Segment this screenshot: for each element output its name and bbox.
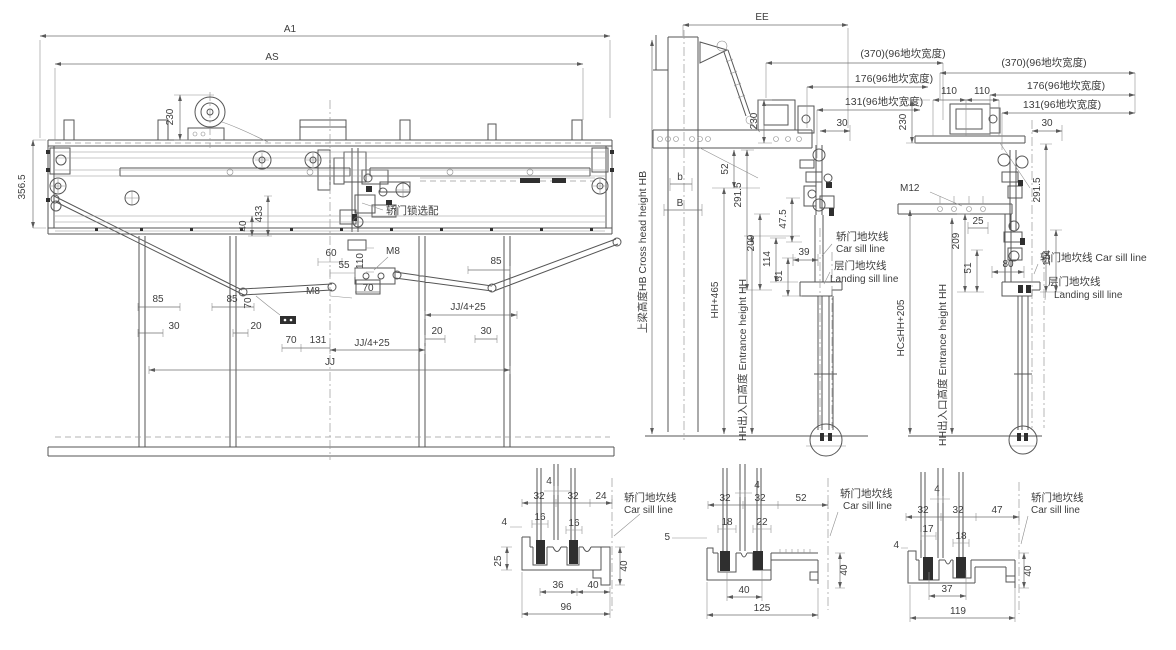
dim-291-5-s2: 291.5	[1032, 177, 1043, 202]
label-car-sill-cn-sec2: 轿门地坎线	[840, 487, 893, 500]
main-front-view: A1 AS 356.5 230 40 433 轿门锁选配 60 55 110 M…	[17, 24, 621, 460]
dim-52-sec2: 52	[795, 493, 807, 504]
dim-39: 39	[798, 247, 810, 258]
dim-370-sill-width-2: (370)(96地坎宽度)	[1001, 56, 1086, 69]
dim-4-left-sec1: 4	[501, 517, 507, 528]
sec1-dimension-lines	[507, 503, 620, 614]
dim-51-s1: 51	[774, 270, 785, 282]
dim-230-s1: 230	[749, 112, 760, 129]
dim-70-bottom: 70	[285, 335, 297, 346]
dim-40-bottom-sec2: 40	[738, 585, 750, 596]
side2-dark-fills	[1017, 180, 1031, 441]
dim-70-boxed: 70	[362, 283, 374, 294]
dim-4-left-sec3: 4	[893, 540, 899, 551]
sec1-geometry	[522, 464, 610, 585]
dim-hh-465: HH+465	[710, 281, 721, 318]
dim-110-main: 110	[355, 253, 366, 269]
label-landing-sill-en-s1: Landing sill line	[830, 274, 899, 285]
dim-32b-sec3: 32	[952, 505, 964, 516]
dim-55: 55	[338, 260, 350, 271]
dim-32a-sec2: 32	[719, 493, 731, 504]
dim-47-sec3: 47	[991, 505, 1003, 516]
main-dimension-lines	[33, 36, 610, 370]
sill-section-96: 4 32 32 24 16 16 4 25 40 36 40 96 轿门地坎线 …	[493, 464, 677, 618]
dim-370-sill-width-1: (370)(96地坎宽度)	[860, 47, 945, 60]
dim-30-s1: 30	[836, 118, 848, 129]
dim-230-main: 230	[165, 108, 176, 125]
dim-32a-sec1: 32	[533, 491, 545, 502]
label-car-sill-en-sec2: Car sill line	[843, 501, 892, 512]
sec3-labels: 4 32 32 47 17 18 4 40 37 119 轿门地坎线 Car s…	[893, 484, 1084, 617]
dim-25: 25	[972, 216, 984, 227]
dim-m8-upper: M8	[386, 246, 400, 257]
label-landing-sill-cn-s2: 层门地坎线	[1048, 275, 1101, 288]
dim-37-sec3: 37	[941, 584, 953, 595]
dim-jj4-right: JJ/4+25	[450, 302, 486, 313]
dim-5-sec2: 5	[664, 532, 670, 543]
dim-16a-sec1: 16	[534, 512, 546, 523]
dim-18-sec2: 18	[721, 517, 733, 528]
dim-96-sec1: 96	[560, 602, 572, 613]
dim-hc-hh-205: HC≤HH+205	[896, 299, 907, 356]
dim-40-right-sec2: 40	[839, 564, 850, 576]
dim-ee: EE	[755, 12, 769, 23]
label-car-door-lock-optional: 轿门锁选配	[386, 204, 439, 217]
side1-sill-detail-circle	[810, 424, 842, 456]
dim-51-s2: 51	[963, 262, 974, 274]
side-section-view-left: EE 上梁高度HB Cross head height HB (370)(96地…	[636, 12, 946, 456]
side-section-view-right: (370)(96地坎宽度) 176(96地坎宽度) 131(96地坎宽度) 30…	[896, 56, 1147, 454]
dim-17-sec3: 17	[922, 524, 934, 535]
sill-section-119: 4 32 32 47 17 18 4 40 37 119 轿门地坎线 Car s…	[893, 468, 1084, 622]
main-construction-lines	[33, 40, 610, 374]
dim-32b-sec1: 32	[567, 491, 579, 502]
dim-20-right: 20	[431, 326, 443, 337]
dim-32a-sec3: 32	[917, 505, 929, 516]
label-car-sill-en-sec1: Car sill line	[624, 505, 673, 516]
dim-a1: A1	[284, 24, 297, 35]
label-entrance-height-s2: HH出入口高度 Entrance height HH	[936, 284, 949, 446]
dim-110-b: 110	[974, 86, 990, 97]
label-entrance-height-s1: HH出入口高度 Entrance height HH	[736, 279, 749, 441]
sec1-labels: 4 32 32 24 16 16 4 25 40 36 40 96 轿门地坎线 …	[493, 476, 677, 613]
label-landing-sill-en-s2: Landing sill line	[1054, 290, 1123, 301]
side2-labels: (370)(96地坎宽度) 176(96地坎宽度) 131(96地坎宽度) 30…	[896, 56, 1147, 446]
dim-36-sec1: 36	[552, 580, 564, 591]
dim-131-sill-width-1: 131(96地坎宽度)	[845, 95, 923, 108]
label-car-sill-s2: 轿门地坎线 Car sill line	[1040, 251, 1147, 264]
dim-4-sec2: 4	[754, 480, 760, 491]
dim-356-5: 356.5	[17, 174, 28, 199]
dim-80: 80	[1002, 259, 1014, 270]
side1-labels: EE 上梁高度HB Cross head height HB (370)(96地…	[636, 12, 946, 441]
side1-dimension-lines	[652, 25, 943, 434]
dim-b-small: b	[677, 172, 683, 183]
dim-110-a: 110	[941, 86, 957, 97]
dim-m8-lower: M8	[306, 286, 320, 297]
dim-47-5: 47.5	[778, 209, 789, 229]
dim-125-sec2: 125	[754, 603, 771, 614]
dim-m12: M12	[900, 183, 920, 194]
main-labels: A1 AS 356.5 230 40 433 轿门锁选配 60 55 110 M…	[17, 24, 502, 368]
dim-114-s1: 114	[762, 251, 773, 267]
label-car-sill-en-sec3: Car sill line	[1031, 505, 1080, 516]
dim-230-s2: 230	[898, 113, 909, 130]
dim-24-sec1: 24	[595, 491, 607, 502]
dim-b-big: B	[677, 198, 684, 209]
dim-as: AS	[265, 52, 279, 63]
label-car-sill-cn-s1: 轿门地坎线	[836, 230, 889, 243]
dim-40-main: 40	[238, 220, 249, 232]
dim-176-sill-width-1: 176(96地坎宽度)	[855, 72, 933, 85]
dim-40-right-sec1: 40	[619, 560, 630, 572]
drawing-canvas: A1 AS 356.5 230 40 433 轿门锁选配 60 55 110 M…	[0, 0, 1176, 650]
side2-sill-detail-circle	[1009, 426, 1037, 454]
dim-32b-sec2: 32	[754, 493, 766, 504]
dim-209-s2: 209	[951, 232, 962, 249]
label-landing-sill-cn-s1: 层门地坎线	[834, 259, 887, 272]
dim-433: 433	[254, 205, 265, 222]
sec2-labels: 4 32 32 52 18 22 5 40 40 125 轿门地坎线 Car s…	[664, 480, 893, 614]
dim-70-rotated: 70	[243, 297, 254, 309]
dim-jj: JJ	[325, 357, 335, 368]
label-car-sill-cn-sec3: 轿门地坎线	[1031, 491, 1084, 504]
dim-176-sill-width-2: 176(96地坎宽度)	[1027, 79, 1105, 92]
dim-85-right: 85	[490, 256, 502, 267]
label-cross-head-height: 上梁高度HB Cross head height HB	[636, 171, 649, 333]
side1-construction-lines	[664, 25, 943, 446]
dim-131-sill-width-2: 131(96地坎宽度)	[1023, 98, 1101, 111]
dim-52: 52	[720, 163, 731, 175]
dim-30-s2: 30	[1041, 118, 1053, 129]
dim-40-right-sec3: 40	[1023, 565, 1034, 577]
dim-40-bottom-sec1: 40	[587, 580, 599, 591]
dim-291-5-s1: 291.5	[733, 182, 744, 207]
dim-30-left: 30	[168, 321, 180, 332]
sill-section-125: 4 32 32 52 18 22 5 40 40 125 轿门地坎线 Car s…	[664, 464, 893, 619]
dim-85-left: 85	[152, 294, 164, 305]
dim-119-sec3: 119	[950, 606, 966, 617]
dim-jj4-left: JJ/4+25	[354, 338, 390, 349]
dim-18-sec3: 18	[955, 531, 967, 542]
dim-20-left: 20	[250, 321, 262, 332]
label-car-sill-en-s1: Car sill line	[836, 244, 885, 255]
dim-209-s1: 209	[746, 234, 757, 251]
dim-25-sec1: 25	[493, 555, 504, 567]
dim-85-mid: 85	[226, 294, 238, 305]
dim-30-right: 30	[480, 326, 492, 337]
label-car-sill-cn-sec1: 轿门地坎线	[624, 491, 677, 504]
main-circles	[50, 97, 621, 321]
dim-4-top-sec3: 4	[934, 484, 940, 495]
dim-60: 60	[325, 248, 337, 259]
dim-4-top-sec1: 4	[546, 476, 552, 487]
dim-22-sec2: 22	[756, 517, 768, 528]
dim-16b-sec1: 16	[568, 518, 580, 529]
elevator-door-operator-drawing: A1 AS 356.5 230 40 433 轿门锁选配 60 55 110 M…	[0, 0, 1176, 650]
dim-131: 131	[310, 335, 327, 346]
